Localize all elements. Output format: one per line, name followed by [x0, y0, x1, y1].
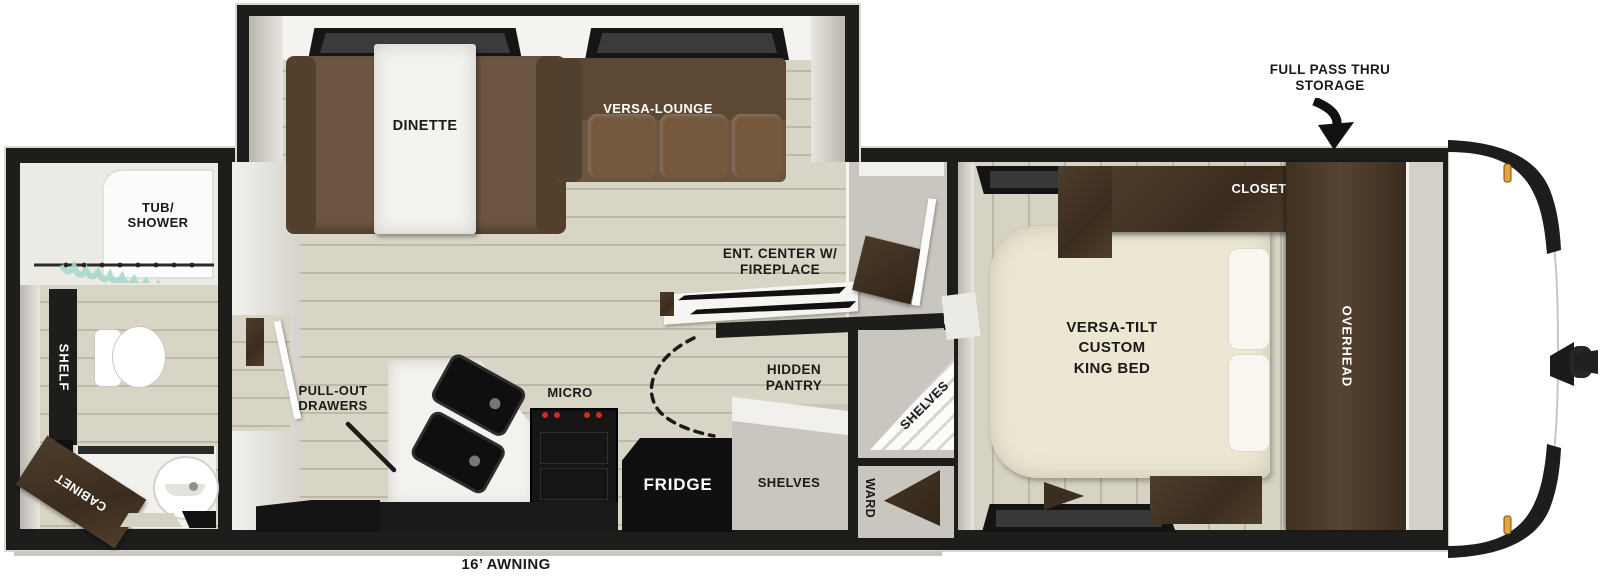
lounge-cushion	[732, 114, 782, 178]
bedroom-window-bottom	[982, 504, 1176, 532]
dinette-label: DINETTE	[374, 118, 476, 135]
bed-pillow	[1228, 354, 1270, 452]
micro-label: MICRO	[522, 386, 618, 401]
main-top-wall-face	[859, 162, 944, 176]
window-glass	[597, 33, 777, 53]
burner-dot	[596, 412, 602, 418]
pull-out-drawers-label: PULL-OUT DRAWERS	[280, 384, 386, 414]
bed-pillow	[1228, 248, 1270, 350]
range-microwave	[530, 408, 618, 512]
vanity-edge	[78, 446, 214, 454]
lounge-cushion	[588, 114, 656, 178]
ward-label-box: WARD	[858, 466, 882, 530]
versa-lounge-label: VERSA-LOUNGE	[580, 102, 736, 117]
doorway-niche-cabinet	[246, 318, 264, 366]
awning-label: 16’ AWNING	[436, 556, 576, 573]
lower-shelves-compartment	[732, 404, 848, 530]
tub-shower-label: TUB/ SHOWER	[106, 201, 210, 231]
marker-light-top	[1504, 164, 1511, 182]
lounge-armrest-left	[556, 58, 582, 182]
pantry-shelves-label: SHELVES	[897, 378, 952, 433]
king-bed-label: VERSA-TILT CUSTOM KING BED	[1004, 318, 1220, 379]
pantry-door-swing-arc	[630, 328, 730, 443]
toilet-bowl	[112, 326, 166, 388]
burner-dot	[554, 412, 560, 418]
pull-out-drawers-pointer	[344, 420, 398, 474]
pass-thru-arrow	[1300, 98, 1360, 152]
slideout-left-wall	[249, 16, 283, 162]
closet-wing-cabinet	[1058, 166, 1112, 258]
shower-curtain	[32, 257, 216, 283]
bed-foot-cabinet	[1150, 476, 1262, 524]
hidden-pantry-label: HIDDEN PANTRY	[736, 362, 852, 393]
bathroom-shelf: SHELF	[49, 289, 77, 445]
overhead-cabinet: OVERHEAD	[1286, 162, 1406, 530]
slideout-window-right	[585, 28, 789, 60]
range-panel	[540, 468, 608, 500]
rv-floorplan: TUB/ SHOWER SHELF CABINET	[0, 0, 1600, 582]
pass-thru-storage-bay	[1406, 162, 1443, 530]
kitchen-base-counter	[380, 502, 618, 532]
burner-dot	[542, 412, 548, 418]
cabinet-label: CABINET	[53, 470, 110, 514]
pass-thru-label: FULL PASS THRU STORAGE	[1240, 62, 1420, 93]
ent-center-label: ENT. CENTER W/ FIREPLACE	[696, 246, 864, 277]
versa-lounge-sofa	[556, 58, 786, 182]
lower-shelves-label: SHELVES	[736, 476, 842, 491]
burner-dot	[584, 412, 590, 418]
bathroom-sink	[153, 456, 219, 520]
bedroom-doorway-threshold	[941, 292, 980, 340]
range-panel	[540, 432, 608, 464]
lounge-cushion	[660, 114, 728, 178]
fridge: FRIDGE	[622, 438, 734, 532]
media-cabinet-end	[660, 292, 674, 316]
pantry-triangle-shelves: SHELVES	[870, 358, 954, 450]
dinette-table	[374, 44, 476, 234]
hidden-pantry-compartment: SHELVES	[848, 330, 954, 458]
ward-compartment: WARD	[848, 458, 954, 538]
ward-label: WARD	[863, 478, 877, 518]
bedroom-left-wall-band	[958, 162, 974, 530]
slideout-right-wall	[811, 16, 845, 162]
sink-drain	[487, 396, 502, 411]
ward-corner-wedge	[884, 470, 940, 526]
overhead-label: OVERHEAD	[1339, 305, 1354, 387]
closet-cabinet	[1100, 166, 1312, 232]
sink-drain	[189, 482, 198, 491]
sink-drain	[467, 454, 482, 469]
front-cap	[1448, 140, 1600, 558]
marker-light-bottom	[1504, 516, 1511, 534]
shelf-label: SHELF	[56, 343, 71, 391]
window-glass	[996, 510, 1162, 527]
fridge-label: FRIDGE	[643, 475, 712, 495]
dinette-armrest-left	[286, 56, 316, 234]
bathroom-floor: TUB/ SHOWER SHELF CABINET	[20, 163, 218, 529]
entry-step	[256, 500, 380, 532]
bath-threshold	[120, 513, 182, 527]
sink-basin-wave	[165, 484, 205, 496]
